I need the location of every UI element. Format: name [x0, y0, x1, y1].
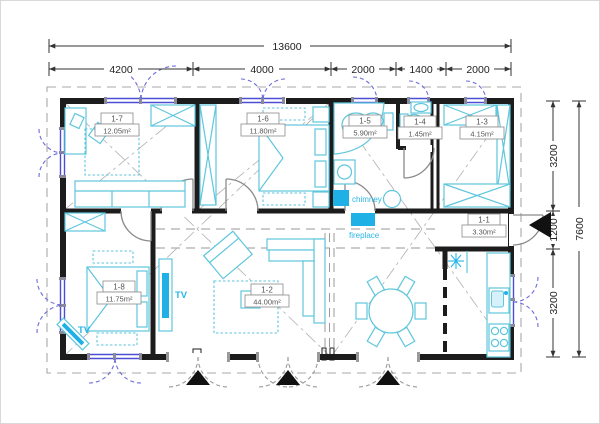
washing-machine-icon: [334, 160, 355, 184]
dim-segment: 4200: [109, 64, 133, 76]
wardrobe-icon: [200, 105, 216, 205]
water-heater-icon: [384, 191, 401, 208]
fireplace-icon: [351, 213, 375, 226]
chair-icon: [415, 303, 426, 319]
door-swing-icon: [121, 207, 151, 241]
dim-segment: 1400: [409, 64, 433, 76]
svg-text:11.75m²: 11.75m²: [106, 295, 133, 304]
room-label: 1-5 5.90m²: [343, 115, 387, 138]
dining-table-icon: [356, 276, 426, 346]
svg-text:1-1: 1-1: [478, 216, 490, 225]
chimney-icon: [333, 190, 349, 206]
dim-segment: 3200: [548, 144, 560, 168]
wardrobe-icon: [65, 213, 105, 231]
wardrobe-icon: [151, 105, 195, 126]
room-label: 1-1 3.30m²: [462, 214, 506, 237]
sofa-icon: [75, 181, 185, 207]
svg-text:1-5: 1-5: [359, 117, 371, 126]
fireplace-label: fireplace: [349, 231, 380, 240]
svg-text:44.00m²: 44.00m²: [253, 298, 281, 307]
corner-sofa-icon: [267, 239, 325, 323]
floor-plan-drawing: chimney fireplace TV TV 1-7 12.05m² 1-6 …: [1, 1, 600, 424]
armchair-icon: [204, 231, 252, 278]
stove-icon: [489, 324, 509, 351]
svg-text:1-3: 1-3: [476, 118, 488, 127]
dim-segment: 3200: [548, 291, 560, 315]
svg-text:1-8: 1-8: [113, 283, 125, 292]
svg-text:1.45m²: 1.45m²: [408, 130, 432, 139]
nightstand-icon: [313, 107, 329, 122]
room-label: 1-8 11.75m²: [97, 281, 141, 304]
svg-text:5.90m²: 5.90m²: [353, 129, 377, 138]
room-label: 1-7 12.05m²: [95, 113, 139, 136]
svg-text:3.30m²: 3.30m²: [472, 228, 496, 237]
room-label: 1-3 4.15m²: [460, 116, 504, 139]
svg-text:1-7: 1-7: [111, 115, 123, 124]
rug-icon: [263, 193, 305, 205]
entrance-arrow-icon: [529, 212, 551, 238]
dim-segment: 2000: [466, 64, 490, 76]
chimney-label: chimney: [352, 195, 382, 204]
floor-plan-page: chimney fireplace TV TV 1-7 12.05m² 1-6 …: [0, 0, 600, 424]
tv-unit-icon: [159, 259, 172, 331]
rug-icon: [93, 251, 133, 263]
tv-label: TV: [175, 290, 188, 301]
kitchen-sink-icon: [489, 288, 509, 313]
desk-icon: [65, 108, 86, 154]
svg-text:11.80m²: 11.80m²: [250, 127, 277, 136]
nightstand-icon: [313, 192, 329, 207]
svg-text:1-2: 1-2: [261, 286, 273, 295]
tv-label: TV: [78, 325, 91, 336]
room-label: 1-2 44.00m²: [245, 284, 289, 307]
svg-text:12.05m²: 12.05m²: [103, 127, 131, 136]
svg-text:1-6: 1-6: [257, 115, 269, 124]
chair-icon: [356, 303, 367, 319]
svg-text:1-4: 1-4: [414, 118, 426, 127]
door-swing-icon: [404, 145, 434, 178]
room-label: 1-6 11.80m²: [241, 113, 285, 136]
dim-segment: 2000: [351, 64, 375, 76]
door-swing-icon: [226, 179, 258, 215]
sink-icon: [411, 102, 431, 113]
snowflake-icon: [448, 253, 464, 269]
rug-icon: [97, 333, 137, 345]
svg-text:4.15m²: 4.15m²: [470, 130, 494, 139]
room-label: 1-4 1.45m²: [398, 116, 442, 139]
dim-total-height: 7600: [574, 217, 586, 241]
dim-total-width: 13600: [272, 41, 301, 53]
dim-segment: 4000: [250, 64, 274, 76]
